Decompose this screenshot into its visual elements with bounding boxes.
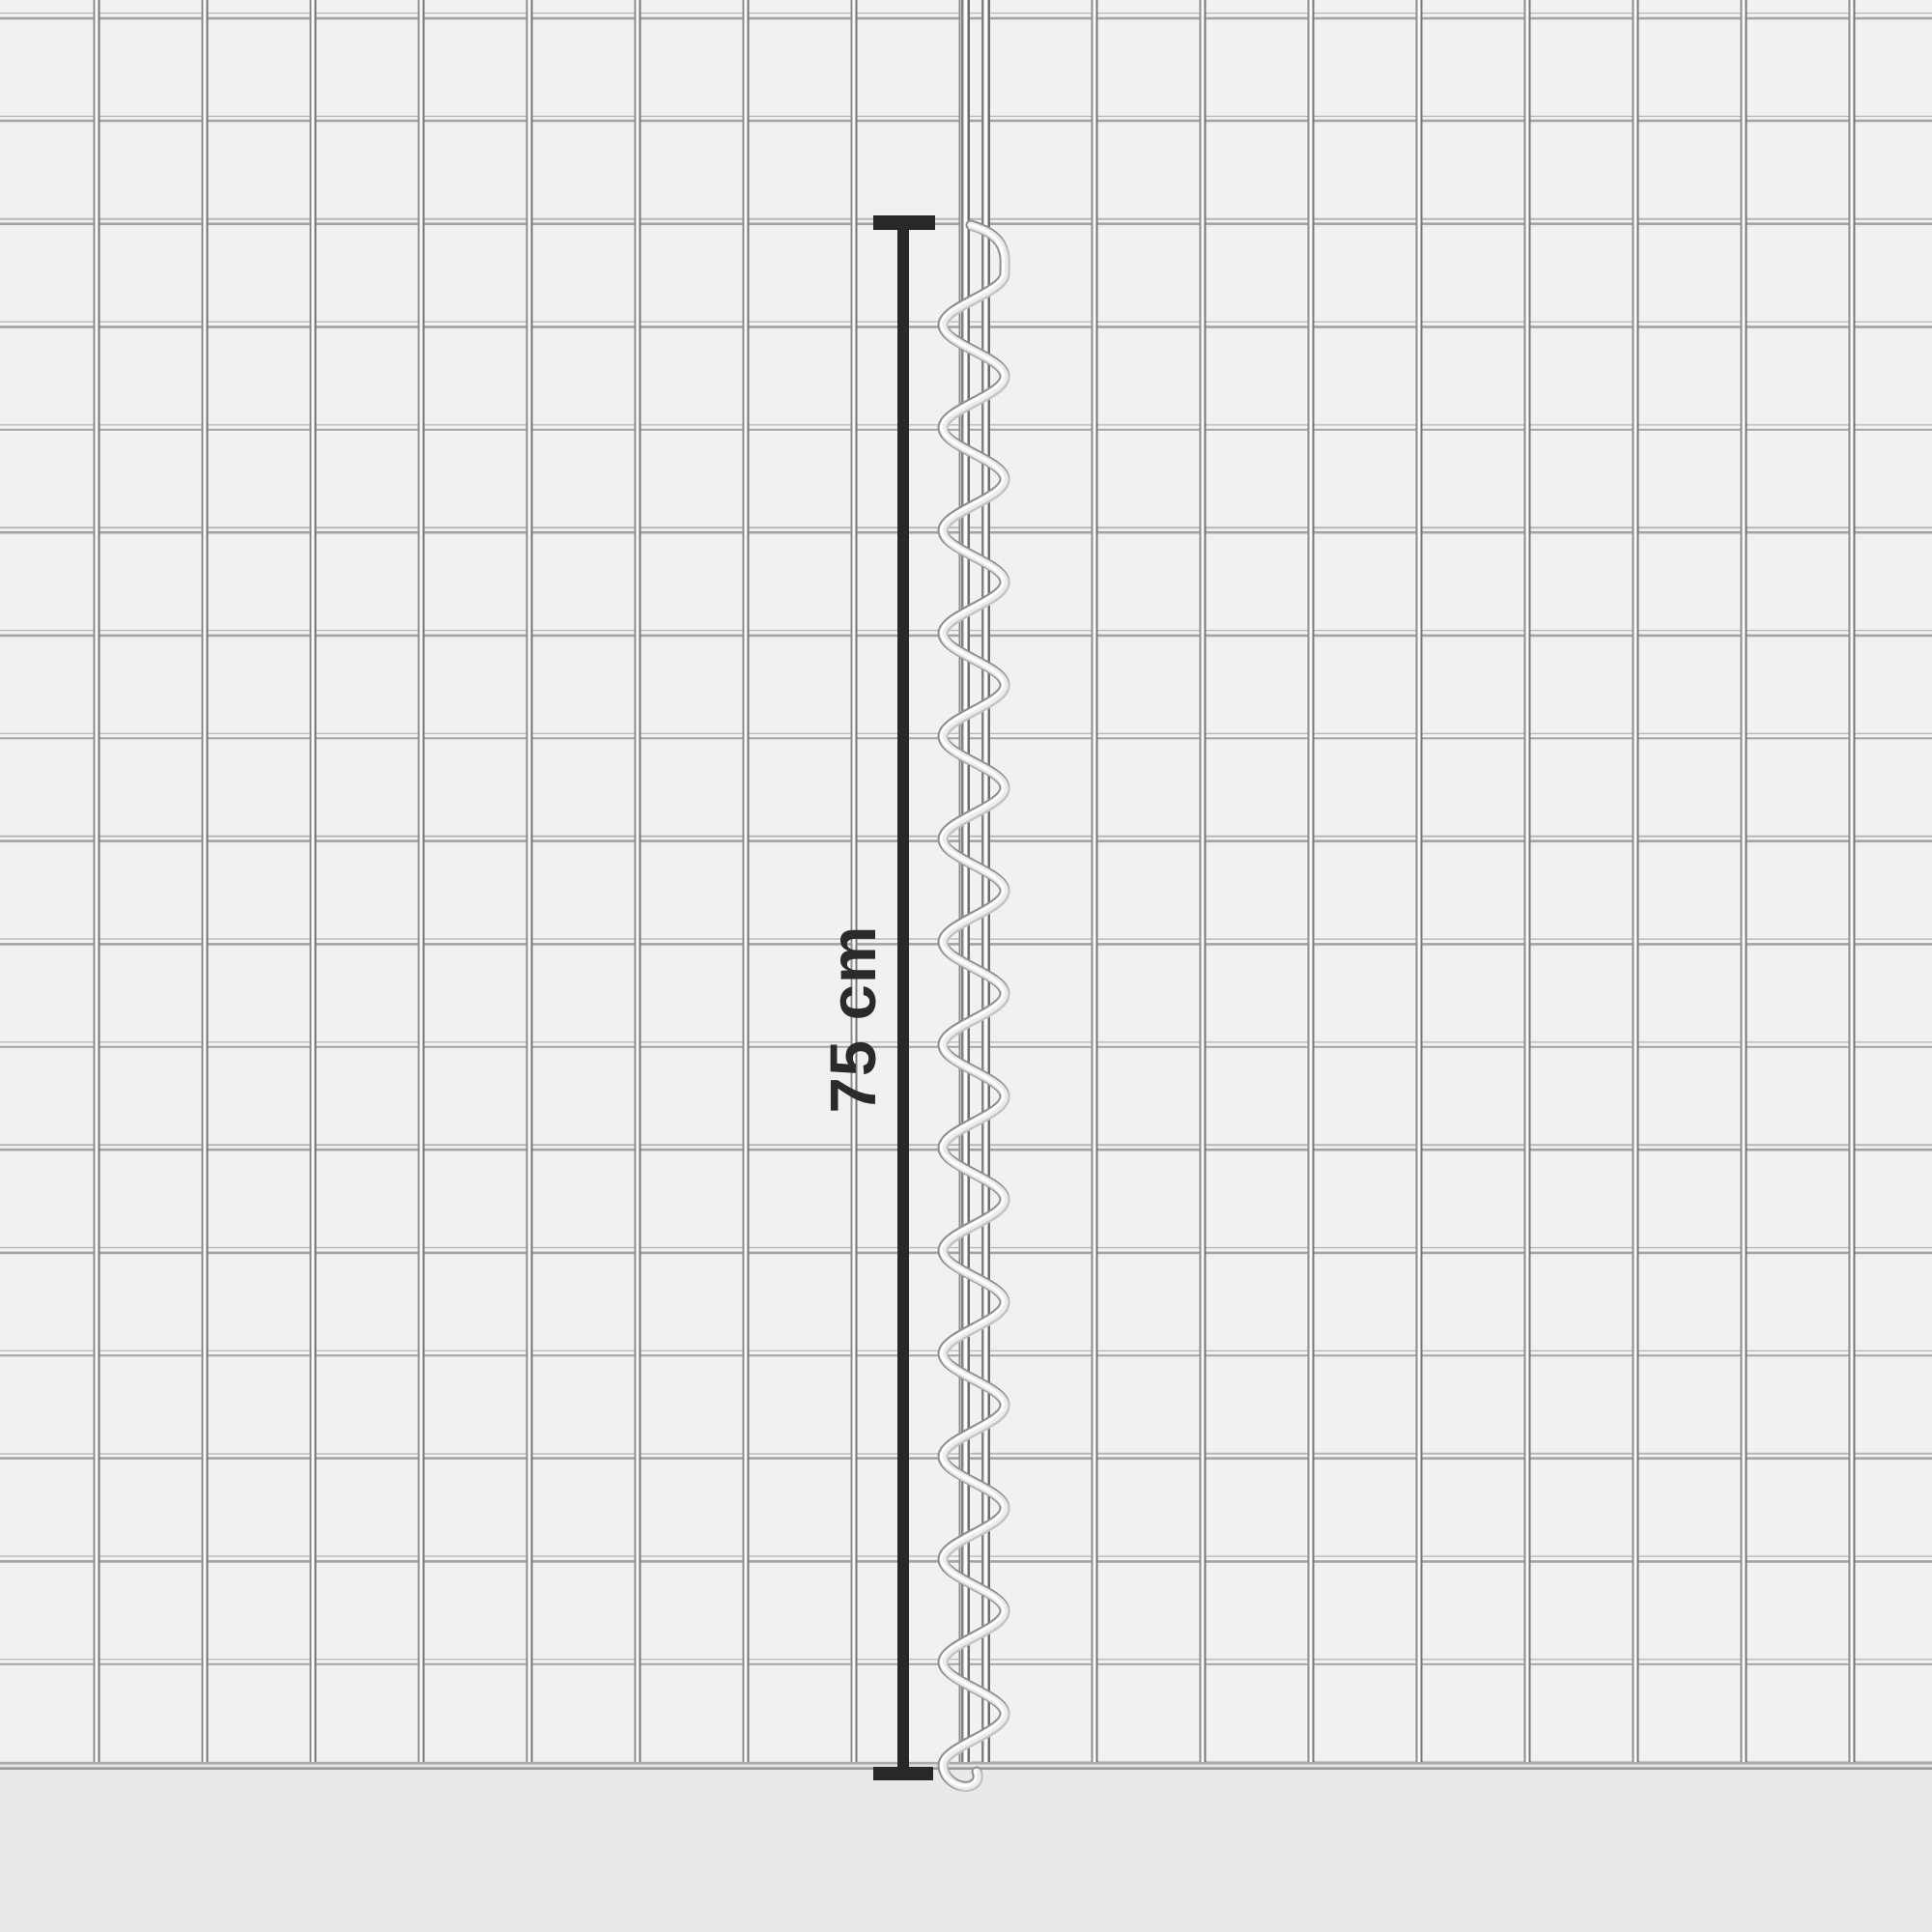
dimension-cap-top bbox=[873, 215, 935, 230]
product-image: 75 cm bbox=[0, 0, 1932, 1932]
dimension-cap-bottom bbox=[873, 1767, 933, 1780]
dimension-label: 75 cm bbox=[820, 894, 888, 1145]
spiral-wire bbox=[0, 0, 1932, 1932]
dimension-line-stem bbox=[897, 222, 909, 1774]
